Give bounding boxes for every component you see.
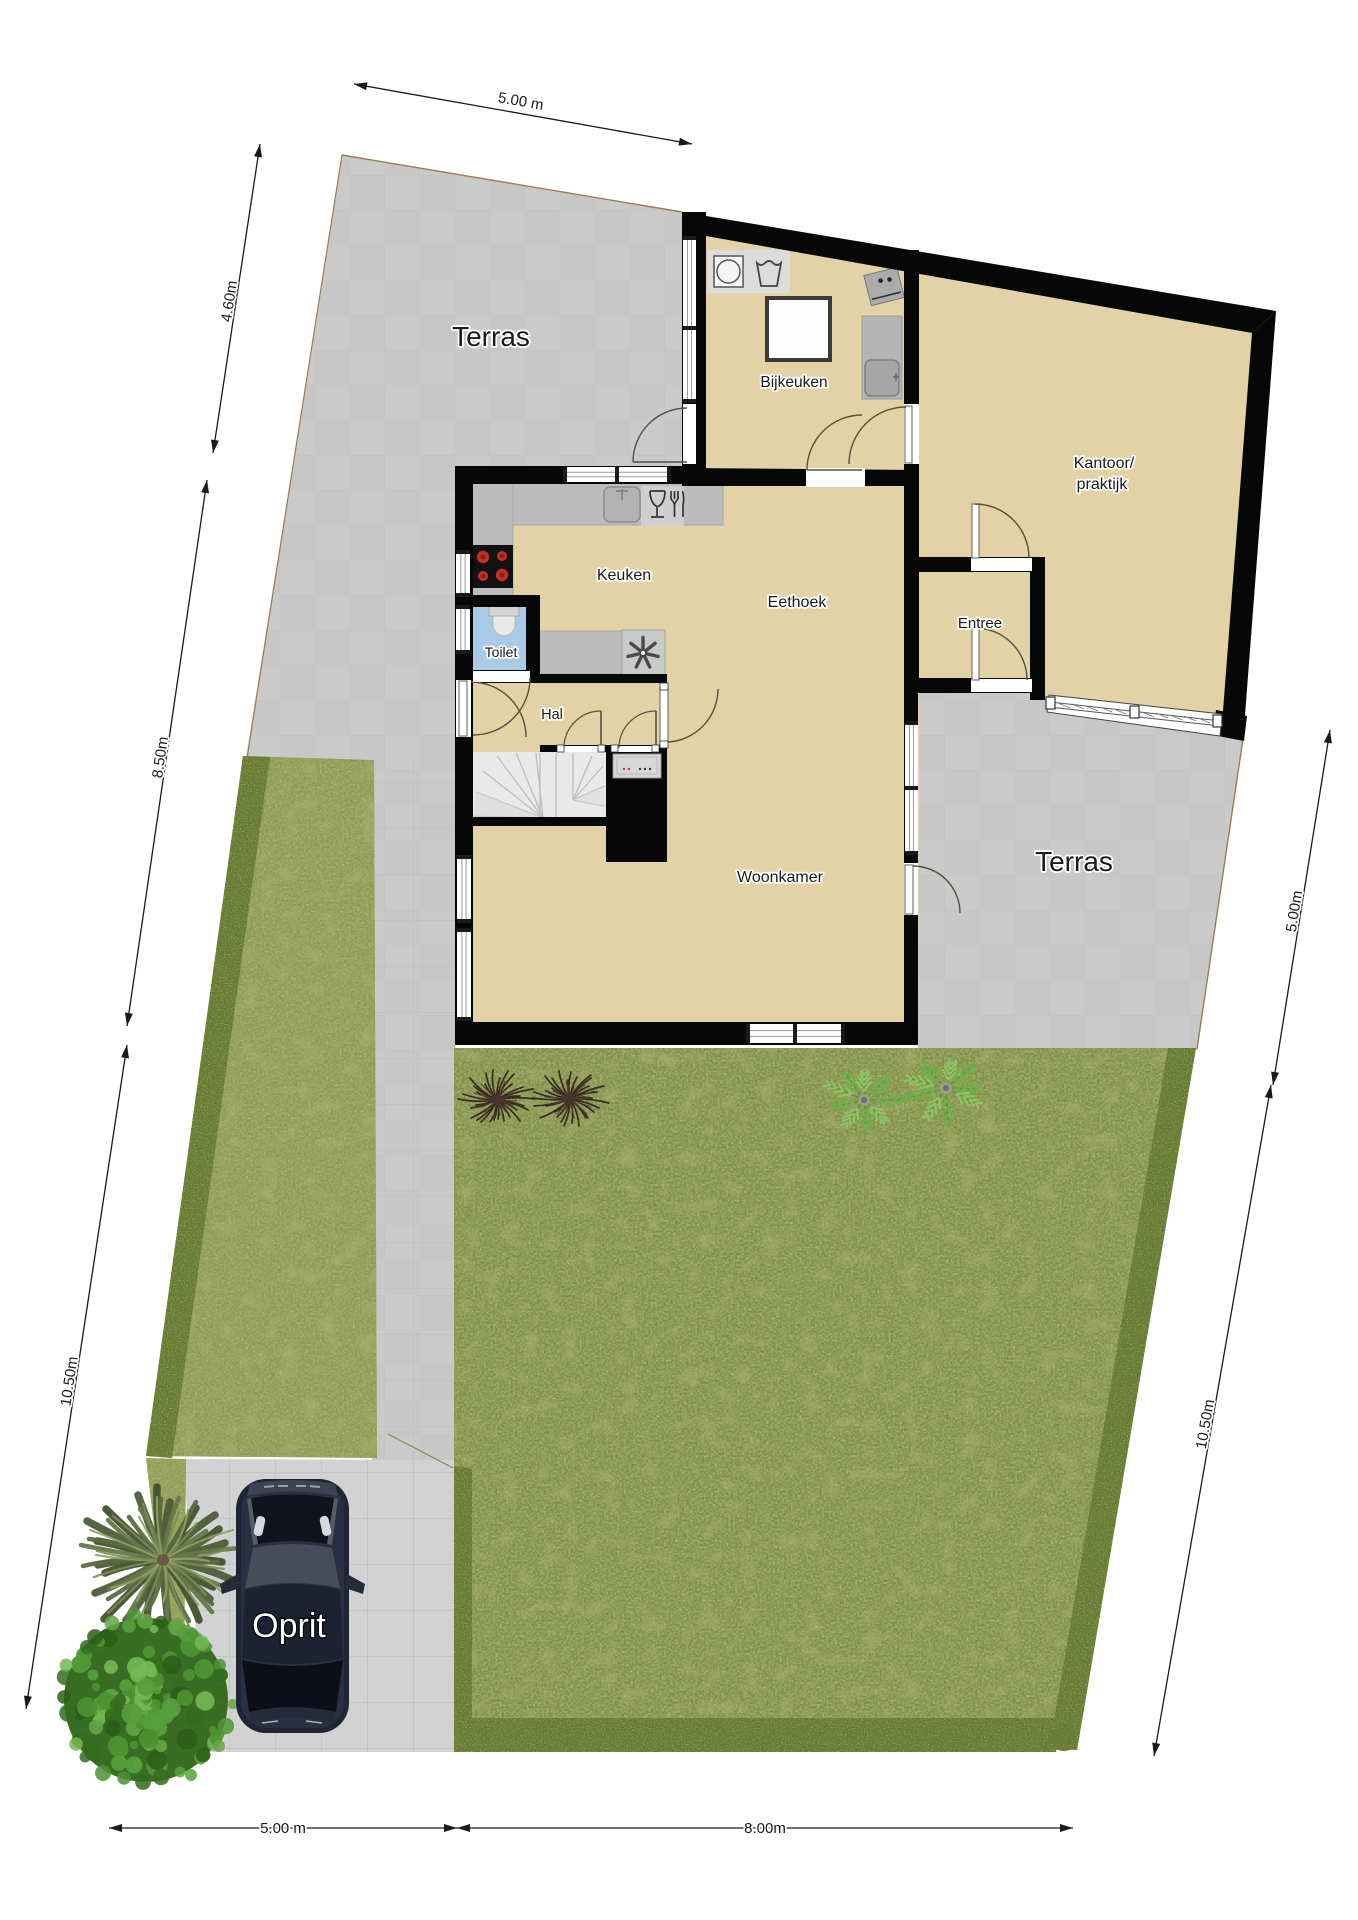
svg-text:Bijkeuken: Bijkeuken bbox=[760, 374, 827, 391]
svg-text:5.00 m: 5.00 m bbox=[260, 1820, 306, 1837]
svg-text:Oprit: Oprit bbox=[252, 1607, 326, 1645]
svg-text:Toilet: Toilet bbox=[485, 644, 518, 660]
svg-text:Terras: Terras bbox=[1035, 846, 1113, 877]
svg-text:Eethoek: Eethoek bbox=[768, 594, 828, 611]
svg-text:Kantoor/: Kantoor/ bbox=[1074, 455, 1135, 472]
svg-text:Woonkamer: Woonkamer bbox=[737, 869, 824, 886]
svg-text:Hal: Hal bbox=[541, 707, 563, 723]
svg-text:Entree: Entree bbox=[958, 615, 1002, 632]
svg-text:praktijk: praktijk bbox=[1077, 476, 1129, 493]
svg-text:8.00m: 8.00m bbox=[744, 1820, 786, 1837]
svg-text:Keuken: Keuken bbox=[597, 567, 651, 584]
svg-text:Terras: Terras bbox=[452, 321, 530, 352]
